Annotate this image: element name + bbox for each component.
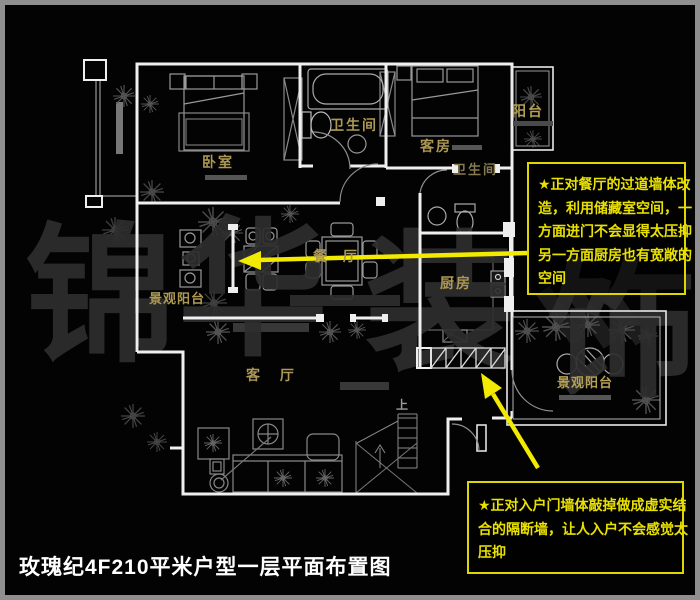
- guest-bed: [397, 66, 478, 136]
- note1-line: 空间: [538, 267, 678, 291]
- room-label-balcony-left: 景观阳台: [149, 292, 205, 305]
- staircase: [356, 414, 417, 493]
- room-label-bathroom1: 卫生间: [330, 118, 378, 132]
- door-hall: [452, 424, 479, 451]
- master-bed: [170, 74, 257, 151]
- living-room-furniture: [198, 419, 342, 492]
- annotation-note-2: ★正对入户门墙体敲掉做成虚实结 合的隔断墙，让人入户不会感觉太 压抑: [467, 481, 684, 574]
- room-label-bathroom2: 卫生间: [453, 163, 498, 176]
- watermark-char: 装: [365, 220, 515, 388]
- room-label-living: 客 厅: [246, 368, 302, 382]
- room-label-kitchen: 厨房: [440, 276, 472, 290]
- note2-line: 压抑: [478, 541, 676, 565]
- room-label-balcony-top: 阳台: [512, 104, 544, 118]
- room-label-balcony-right: 景观阳台: [557, 376, 613, 389]
- note1-line: ★正对餐厅的过道墙体改: [538, 173, 678, 197]
- column-top-left: [84, 60, 106, 80]
- label-underline: [205, 175, 247, 180]
- sink-bath1: [348, 135, 366, 153]
- floorplan-screenshot: 锦 华 — 装 饰: [0, 0, 700, 600]
- stairs-up-label: 上: [396, 399, 408, 411]
- label-underline: [559, 395, 611, 400]
- bathtub: [308, 69, 388, 109]
- note2-line: ★正对入户门墙体敲掉做成虚实结: [478, 494, 676, 518]
- note1-line: 方面进门不会显得太压抑: [538, 220, 678, 244]
- door-bath2: [420, 170, 447, 193]
- note2-line: 合的隔断墙，让人入户不会感觉太: [478, 518, 676, 542]
- column-bottom-left: [86, 196, 102, 207]
- plan-title: 玫瑰纪4F210平米户型一层平面布置图: [19, 551, 392, 581]
- room-label-guest: 客房: [420, 139, 452, 153]
- room-label-dining: 餐 厅: [313, 249, 363, 263]
- annotation-note-1: ★正对餐厅的过道墙体改 造，利用储藏室空间，一 方面进门不会显得太压抑 另一方面…: [527, 162, 686, 295]
- label-underline: [513, 121, 553, 126]
- note1-line: 另一方面厨房也有宽敞的: [538, 244, 678, 268]
- note1-line: 造，利用储藏室空间，一: [538, 197, 678, 221]
- door-bedroom: [340, 164, 378, 202]
- room-label-bedroom: 卧室: [202, 155, 234, 169]
- ac-unit: [116, 102, 123, 154]
- label-underline: [452, 145, 482, 150]
